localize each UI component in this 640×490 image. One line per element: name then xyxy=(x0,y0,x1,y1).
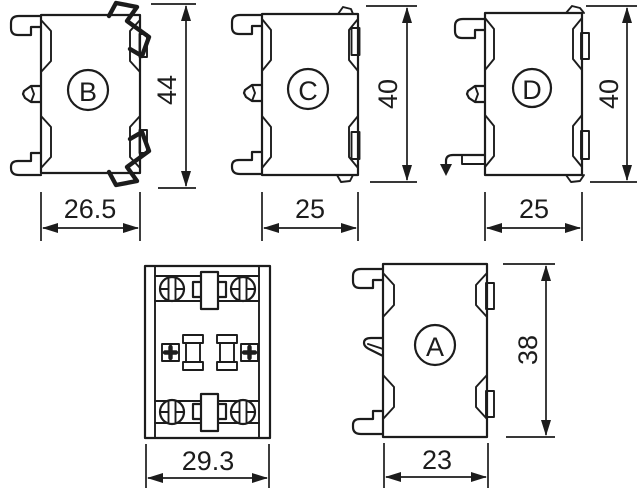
mounting-hook-top-icon xyxy=(353,269,383,288)
width-dimension-label: 25 xyxy=(295,194,325,224)
screw-terminal xyxy=(231,400,255,424)
mounting-hook-top-icon xyxy=(455,19,485,38)
view-front: 29.3 xyxy=(145,266,270,488)
screw-terminal xyxy=(231,277,255,301)
part-label: B xyxy=(79,77,97,107)
side-clip-detail xyxy=(368,344,383,349)
dimension-height-a: 38 xyxy=(503,264,555,437)
dimension-width-c: 25 xyxy=(262,192,358,241)
screw-terminal xyxy=(160,277,184,301)
side-clip-detail xyxy=(475,86,478,102)
side-clip-icon xyxy=(364,338,383,356)
view-c: C 40 25 xyxy=(232,6,417,241)
height-dimension-label: 38 xyxy=(513,335,543,365)
technical-drawing: B 44 26.5 C xyxy=(0,0,640,490)
dimension-width-b: 26.5 xyxy=(41,192,140,241)
dimension-height-b: 44 xyxy=(151,4,196,188)
part-label: D xyxy=(522,75,542,105)
mounting-hook-top-icon xyxy=(232,15,262,34)
side-clip-detail xyxy=(31,86,34,102)
center-contact-post xyxy=(201,394,218,431)
mounting-hook-top-icon xyxy=(11,16,41,35)
view-a: A 38 23 xyxy=(353,264,555,488)
view-d: D 40 25 xyxy=(440,6,637,241)
center-contact-post xyxy=(201,272,218,309)
width-dimension-label: 26.5 xyxy=(64,194,117,224)
side-clip-detail xyxy=(252,85,255,101)
view-b: B 44 26.5 xyxy=(11,3,196,241)
dimension-height-d: 40 xyxy=(586,6,637,182)
dimension-height-c: 40 xyxy=(366,6,417,182)
height-dimension-label: 40 xyxy=(594,79,624,109)
height-dimension-label: 40 xyxy=(373,79,403,109)
part-label: A xyxy=(426,332,444,362)
dimension-width-a: 23 xyxy=(384,443,488,488)
part-label: C xyxy=(298,76,318,106)
width-dimension-label: 23 xyxy=(422,445,452,475)
height-dimension-label: 44 xyxy=(152,75,182,105)
width-dimension-label: 29.3 xyxy=(182,446,235,476)
mounting-hook-bottom-icon xyxy=(11,153,41,175)
width-dimension-label: 25 xyxy=(519,194,549,224)
spring-clip-inner-line xyxy=(462,156,485,164)
spring-clip-arrow-tip-icon xyxy=(440,164,452,176)
dimension-width-front: 29.3 xyxy=(146,444,269,488)
dimension-width-d: 25 xyxy=(485,192,582,241)
mounting-hook-bottom-icon xyxy=(232,152,262,174)
mounting-hook-bottom-icon xyxy=(353,411,383,434)
screw-terminal xyxy=(160,400,184,424)
